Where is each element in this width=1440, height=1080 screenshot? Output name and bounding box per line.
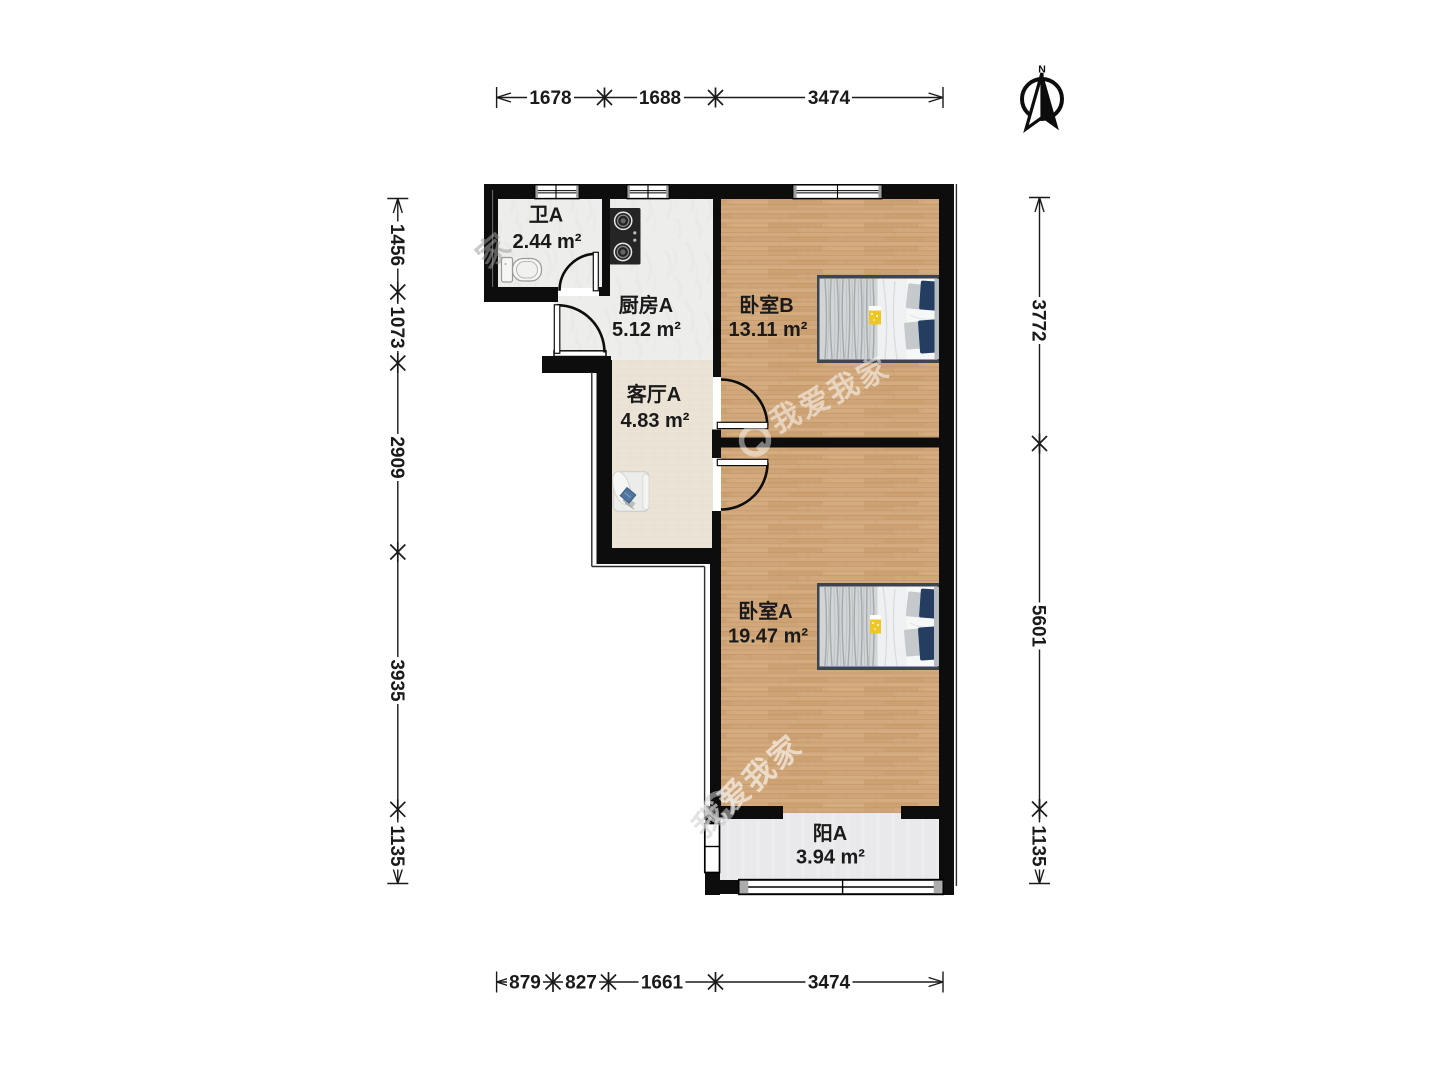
svg-text:19.47 m²: 19.47 m² [728,626,808,648]
svg-text:1661: 1661 [641,973,684,994]
svg-text:卧室A: 卧室A [738,599,792,623]
svg-text:1688: 1688 [639,88,681,109]
svg-text:阳A: 阳A [813,822,847,845]
svg-text:3.94 m²: 3.94 m² [796,847,865,869]
svg-text:3935: 3935 [386,659,407,702]
svg-text:厨房A: 厨房A [619,293,673,317]
svg-text:5.12 m²: 5.12 m² [612,319,681,341]
svg-text:5601: 5601 [1028,605,1049,648]
svg-text:1135: 1135 [386,825,407,867]
svg-text:4.83 m²: 4.83 m² [621,410,690,432]
svg-text:3772: 3772 [1028,299,1049,341]
svg-text:客厅A: 客厅A [626,382,681,406]
svg-text:1135: 1135 [1028,825,1049,867]
svg-text:2.44 m²: 2.44 m² [513,231,582,253]
svg-text:3474: 3474 [808,973,851,994]
svg-text:1456: 1456 [386,224,407,266]
svg-text:卧室B: 卧室B [739,293,793,317]
svg-text:1073: 1073 [386,306,407,348]
svg-text:1678: 1678 [529,88,571,109]
svg-text:879: 879 [509,973,541,994]
svg-text:827: 827 [565,973,597,994]
svg-text:2909: 2909 [386,436,407,478]
svg-text:13.11 m²: 13.11 m² [729,319,808,341]
svg-text:3474: 3474 [808,88,851,109]
svg-text:卫A: 卫A [529,205,563,227]
